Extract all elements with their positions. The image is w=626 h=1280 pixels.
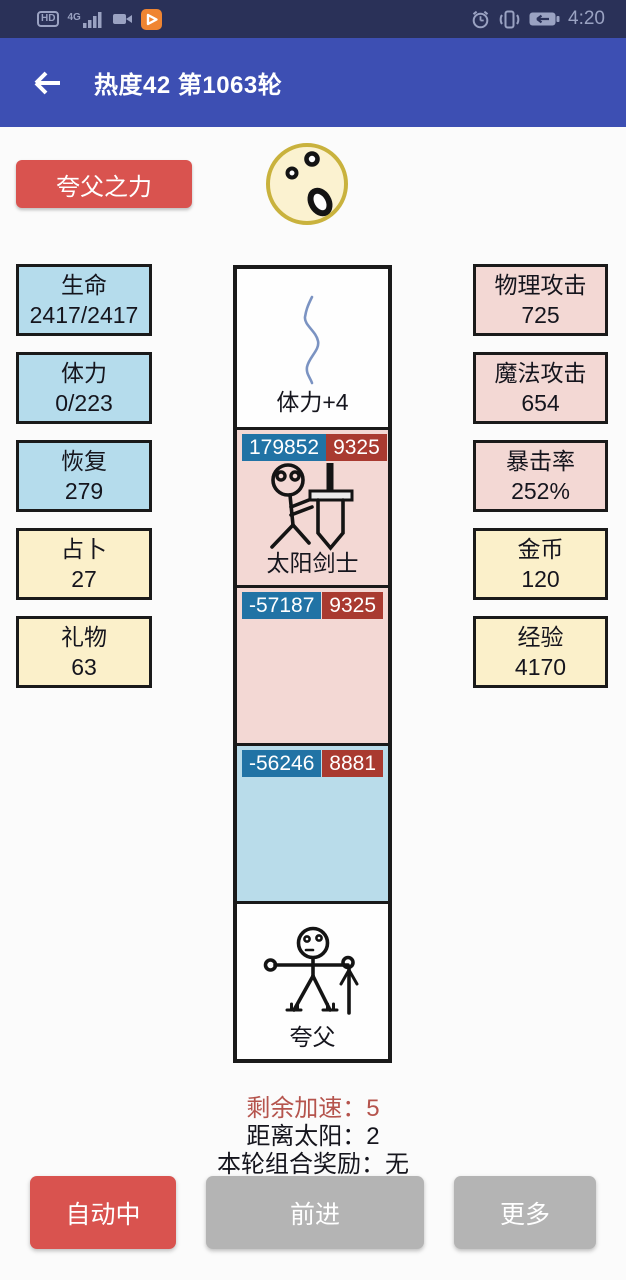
- stat-value: 725: [521, 300, 559, 330]
- camcorder-icon: [113, 11, 133, 27]
- signal-icon: 4G: [67, 10, 104, 28]
- stat-box-magic-attack: 魔法攻击 654: [473, 352, 608, 424]
- damage-badges: -56246 8881: [242, 750, 383, 777]
- stat-label: 经验: [518, 622, 564, 652]
- battery-icon: [529, 11, 560, 27]
- phone-screen: HD 4G: [0, 0, 626, 1280]
- stat-label: 恢复: [61, 446, 107, 476]
- sun-face-icon: [264, 140, 351, 227]
- kuafu-power-button[interactable]: 夸父之力: [16, 160, 192, 208]
- stat-box-recovery: 恢复 279: [16, 440, 152, 512]
- advance-button[interactable]: 前进: [206, 1176, 424, 1249]
- stat-value: 27: [71, 564, 97, 594]
- more-button[interactable]: 更多: [454, 1176, 596, 1249]
- footer-button-bar: 自动中 前进 更多: [0, 1176, 626, 1249]
- track-cell-damage-2: -56246 8881: [237, 743, 388, 901]
- hp-badge: -56246: [242, 750, 321, 777]
- stat-value: 0/223: [55, 388, 113, 418]
- hp-badge: -57187: [242, 592, 321, 619]
- track-cell-player: 夸父: [237, 901, 388, 1059]
- event-label: 体力+4: [237, 383, 388, 417]
- stat-label: 物理攻击: [495, 270, 587, 300]
- auto-button[interactable]: 自动中: [30, 1176, 176, 1249]
- stat-box-physical-attack: 物理攻击 725: [473, 264, 608, 336]
- track-cell-enemy: 179852 9325 太阳剑士: [237, 427, 388, 585]
- status-bar-left: HD 4G: [37, 9, 162, 30]
- alarm-icon: [471, 10, 490, 29]
- stat-label: 礼物: [61, 622, 107, 652]
- stat-value: 63: [71, 652, 97, 682]
- track-cell-event: 体力+4: [237, 269, 388, 427]
- attack-badge: 9325: [322, 592, 383, 619]
- attack-badge: 8881: [322, 750, 383, 777]
- app-bar: 热度42 第1063轮: [0, 38, 626, 127]
- enemy-name: 太阳剑士: [237, 544, 388, 578]
- page-title: 热度42 第1063轮: [94, 65, 282, 100]
- stat-value: 2417/2417: [30, 300, 139, 330]
- status-bar: HD 4G: [0, 0, 626, 38]
- combo-reward-text: 本轮组合奖励：无: [0, 1144, 626, 1179]
- clock-time: 4:20: [568, 8, 605, 30]
- player-name: 夸父: [237, 1018, 388, 1052]
- stat-label: 魔法攻击: [495, 358, 587, 388]
- stat-box-crit-rate: 暴击率 252%: [473, 440, 608, 512]
- stat-value: 252%: [511, 476, 570, 506]
- vibrate-icon: [498, 10, 521, 29]
- stat-box-stamina: 体力 0/223: [16, 352, 152, 424]
- stat-value: 279: [65, 476, 103, 506]
- stat-label: 体力: [61, 358, 107, 388]
- stat-value: 4170: [515, 652, 566, 682]
- back-arrow-icon: [31, 67, 63, 99]
- back-button[interactable]: [30, 66, 64, 100]
- stat-label: 金币: [518, 534, 564, 564]
- video-app-icon: [141, 9, 162, 30]
- status-bar-right: 4:20: [471, 8, 605, 30]
- damage-badges: -57187 9325: [242, 592, 383, 619]
- stat-label: 暴击率: [506, 446, 575, 476]
- track-cell-damage-1: -57187 9325: [237, 585, 388, 743]
- stat-box-experience: 经验 4170: [473, 616, 608, 688]
- stat-label: 生命: [61, 270, 107, 300]
- stat-box-hp: 生命 2417/2417: [16, 264, 152, 336]
- stat-value: 654: [521, 388, 559, 418]
- stat-value: 120: [521, 564, 559, 594]
- hd-icon: HD: [37, 11, 59, 27]
- battle-track: 体力+4 179852 9325: [233, 265, 392, 1063]
- stat-box-divination: 占卜 27: [16, 528, 152, 600]
- stat-box-gold: 金币 120: [473, 528, 608, 600]
- stat-box-gift: 礼物 63: [16, 616, 152, 688]
- stat-label: 占卜: [61, 534, 107, 564]
